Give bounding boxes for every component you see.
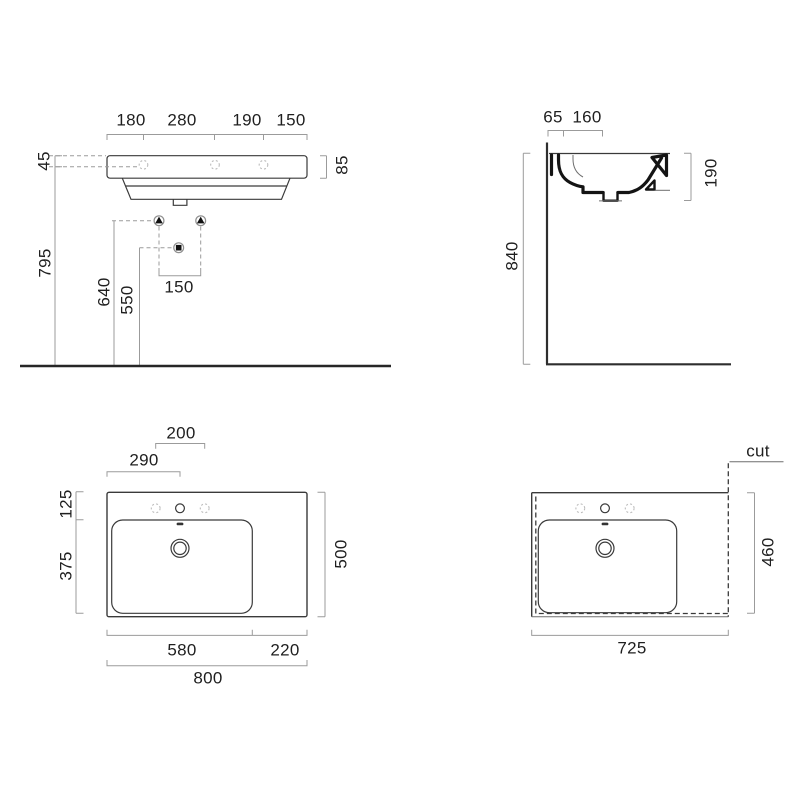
side-dim-160: 160 [572, 109, 601, 126]
front-150-bracket [159, 268, 201, 276]
drain-marker-square [176, 245, 182, 251]
plan-tap-hole-right [200, 504, 209, 513]
cut-dim-725: 725 [617, 640, 646, 657]
front-bowl-underside [122, 178, 290, 199]
plan-view [76, 444, 325, 666]
cut-line-left-bottom [536, 497, 728, 614]
plan-drain-inner [174, 542, 186, 554]
plan-bowl [112, 520, 253, 613]
plan-200-bracket [156, 444, 205, 449]
front-dim-550: 550 [119, 285, 136, 314]
plan-580-220-bracket [107, 630, 307, 636]
front-tap-hole-right [259, 161, 268, 170]
plan-tap-hole-left [151, 504, 160, 513]
plan-outline [107, 492, 307, 616]
side-840-bracket [523, 153, 530, 364]
plan-500-bracket [318, 492, 326, 616]
cut-label: cut [746, 443, 770, 460]
front-dim-85: 85 [334, 155, 351, 175]
front-dim-150-fixing: 150 [164, 279, 193, 296]
side-190-bracket [684, 153, 691, 200]
plan-dim-290: 290 [129, 452, 158, 469]
cut-overflow-slot [602, 523, 609, 526]
cut-460-bracket [747, 493, 755, 614]
plan-left-bracket [76, 492, 84, 614]
plan-dim-220: 220 [270, 642, 299, 659]
side-top-dim-bracket [548, 131, 603, 137]
section-bowl-profile [559, 155, 604, 193]
front-dim-280: 280 [167, 112, 196, 129]
cut-725-bracket [532, 630, 729, 636]
plan-dim-125: 125 [58, 489, 75, 518]
cut-tap-hole-right [625, 504, 634, 513]
plan-overflow-slot [177, 523, 184, 526]
front-tap-hole-center [211, 161, 220, 170]
technical-drawing: 180 280 190 150 45 795 640 550 150 85 65… [0, 0, 800, 800]
plan-dim-500: 500 [333, 539, 350, 568]
front-45-bracket [55, 156, 62, 167]
side-dim-190: 190 [703, 158, 720, 187]
plan-290-bracket [107, 472, 180, 477]
front-85-bracket [320, 156, 327, 179]
side-dim-65: 65 [543, 109, 563, 126]
section-inner-bowl-line [573, 155, 583, 177]
front-dim-150-top: 150 [276, 112, 305, 129]
front-dim-45: 45 [36, 151, 53, 171]
plan-tap-hole-center [176, 504, 185, 513]
plan-dim-800: 800 [193, 670, 222, 687]
cut-dim-460: 460 [760, 537, 777, 566]
front-drain-stub [173, 199, 187, 205]
side-section-view [523, 131, 731, 365]
cut-drain-inner [599, 542, 611, 554]
front-dim-795: 795 [37, 248, 54, 277]
plan-800-bracket [107, 660, 307, 666]
plan-dim-375: 375 [58, 551, 75, 580]
plan-dim-200: 200 [166, 425, 195, 442]
front-dim-180: 180 [116, 112, 145, 129]
section-drain-stub [604, 192, 618, 201]
side-dim-840: 840 [504, 241, 521, 270]
cut-tap-hole-center [601, 504, 610, 513]
cut-bowl [538, 520, 676, 613]
front-tap-hole-left [139, 161, 148, 170]
front-dim-190: 190 [232, 112, 261, 129]
cut-tap-hole-left [576, 504, 585, 513]
cut-plan-view [532, 462, 784, 636]
front-top-dim-bracket [107, 135, 307, 141]
plan-dim-580: 580 [167, 642, 196, 659]
front-dim-640: 640 [96, 277, 113, 306]
